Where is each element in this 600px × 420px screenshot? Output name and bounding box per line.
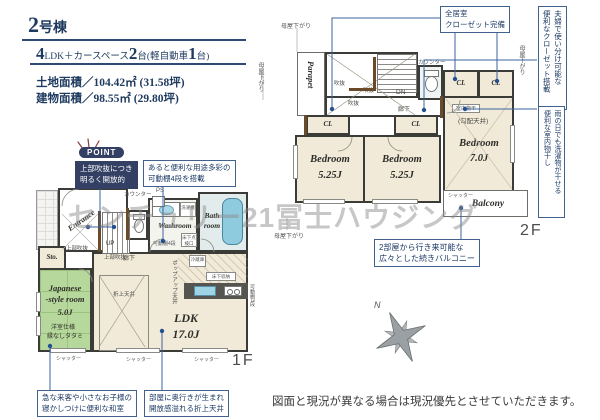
floor2-label: 2F [520,222,543,240]
ldk-window-1 [116,348,160,353]
spec-kei-text: 台) [197,52,210,62]
upper-void-label-1: 上部吹抜 [66,244,88,252]
bedroom3-ceiling-note: (勾配天井) [458,115,488,125]
closet-2f-a: CL [443,70,479,98]
closet-2f-a-label: CL [445,79,477,87]
closet-2f-b: CL [478,70,514,98]
bedroom2: Bedroom 5.25J [363,135,441,203]
closet-2f-b-label: CL [480,79,512,87]
flyer-canvas: 2号棟 4LDK＋カースペース2台(軽自動車1台) 土地面積／104.42㎡ (… [0,0,600,420]
closet-all-line-1: 全居室 [445,9,505,20]
moyasagari-right-label: 母屋下がり [517,45,526,75]
dn-label: DN [396,89,405,96]
fridge-box: 冷蔵庫 [189,255,206,267]
header-rule-top [22,39,246,41]
kitchen-counter [184,283,248,299]
closet-all-callout: 全居室 クローゼット完備 [440,6,510,33]
moyasagari-left-label: 母屋下がり [256,62,265,92]
japanese-room-name-1: Japanese [40,284,90,294]
hallway-1f-label: 廊下 [123,253,135,262]
japanese-room: Japanese -style room 5.0J 洋室仕様 縁なしタタミ [38,268,92,352]
japanese-room-size: 5.0J [40,308,90,318]
balcony-callout-line-1: 2部屋から行き来可能な [379,242,475,253]
storage-label: Sto. [40,253,64,261]
closet-2f-d: CL [394,115,438,135]
land-area: 土地面積／104.42㎡ (31.58坪) [36,74,185,90]
washitsu-callout-line-2: 寝かしつけに便利な和室 [42,404,132,415]
ceiling-callout-line-2: 開放感溢れる折上天井 [149,404,224,415]
floor-storage-box: 床下収納 [206,272,236,281]
entrance-porch [36,190,58,250]
bedroom1: Bedroom 5.25J [295,135,365,203]
stove [224,286,242,296]
spec-ldk-count: 4 [36,44,45,63]
parapet-area: Parapet [297,52,325,116]
closet-2f-d-label: CL [396,120,436,128]
up-label: UP [106,241,114,247]
balcony-callout: 2部屋から行き来可能な 広々とした続きバルコニー [374,239,480,267]
japanese-room-note-2: 縁なしタタミ [47,331,83,340]
building-title: 2号棟 [28,12,67,38]
point-callout-line-1: 上部吹抜につき [80,164,133,175]
void-label-1: 吹抜 [334,79,345,87]
point-callout: 上部吹抜につき 明るく開放的 [75,161,138,189]
popup-ceiling-label: ポップアップ天井 [170,260,178,304]
bedroom2-size: 5.25J [372,170,432,182]
parapet-label: Parapet [305,61,315,88]
bedroom3-name: Bedroom [450,138,508,150]
closet-use-col-2: 便利なクローゼット搭載 [541,10,552,106]
void-label-3: 吹抜 [348,99,359,107]
closet-use-col-1: 夫婦で使い分け可能な [552,10,563,106]
shutter-1f-label-2: シャッター [126,356,151,363]
point-callout-line-2: 明るく開放的 [80,175,133,186]
ldk: 冷蔵庫 床下収納 ポップアップ天井 折上天井 LDK 17.0J [92,252,248,352]
washitsu-callout: 急な来客や小さなお子様の 寝かしつけに便利な和室 [37,390,137,417]
ldk-name: LDK [156,312,216,326]
spec-car-text: 台(軽自動車 [137,52,188,62]
counter-2f-label: カウンター [418,58,446,66]
coffered-ceiling-label: 折上天井 [113,290,135,298]
compass-icon [365,301,437,373]
bedroom3: 室内物干 (勾配天井) Bedroom 7.0J [443,96,514,192]
building-suffix: 号棟 [39,21,67,36]
ps-label: PS [156,188,164,194]
washitsu-callout-line-1: 急な来客や小さなお子様の [42,393,132,404]
ceiling-callout-line-1: 部屋に奥行きが生まれ [149,393,224,404]
ldk-window-2 [182,348,228,353]
disclaimer: 図面と現況が異なる場合は現況優先とさせていただきます。 [272,393,581,409]
indoor-dry-label: 室内物干 [452,104,480,113]
toilet-2f-bowl [425,76,438,92]
shelf4-label: 可動棚4段 [153,240,176,247]
bedroom3-size: 7.0J [450,153,508,165]
storage-room: Sto. [38,246,66,270]
japanese-room-name-2: -style room [40,295,90,305]
building-area: 建物面積／98.55㎡ (29.80坪) [36,90,179,106]
ceiling-callout: 部屋に奥行きが生まれ 開放感溢れる折上天井 [144,390,229,417]
japanese-room-window [50,348,86,353]
indoor-dry-callout: 雨の日でも洗濯物が干せる 便利な室内物干し [538,106,565,218]
japanese-room-side-window-1 [36,292,41,312]
shutter-1f-label-3: シャッター [194,356,219,363]
header-rule-bottom [30,63,246,65]
stove-burner-2 [234,289,240,295]
closet-use-callout: 夫婦で使い分け可能な 便利なクローゼット搭載 [538,6,567,110]
hallway-2f-label: 廊下 [398,104,410,113]
layout-spec: 4LDK＋カースペース2台(軽自動車1台) [36,44,209,64]
closet-2f-c-label: CL [308,120,348,128]
shelf-callout-line-1: あると便利な用途多彩の [148,163,231,174]
spec-ldk-text: LDK＋カースペース [45,52,129,62]
toilet-2f [418,65,443,100]
bedroom3-window [510,125,515,163]
bedroom1-name: Bedroom [300,154,360,166]
balcony-callout-line-2: 広々とした続きバルコニー [379,253,475,264]
closet-2f-c: CL [306,115,350,135]
shelf-callout: あると便利な用途多彩の 可動棚4段を搭載 [143,160,236,187]
indoor-dry-col-1: 雨の日でも洗濯物が干せる [552,110,563,214]
shelf3-label: 可動棚3段 [249,284,256,307]
indoor-dry-col-2: 便利な室内物干し [541,110,552,214]
ldk-size: 17.0J [156,328,216,342]
japanese-room-note-1: 洋室仕様 [51,322,75,331]
watermark: センチュリー21冨士ハウジング [68,196,478,236]
point-badge: POINT [79,147,124,158]
shelf-callout-line-2: 可動棚4段を搭載 [148,174,231,185]
coffered-ceiling-area: 折上天井 [99,275,149,351]
stairs-2f [377,54,417,93]
spec-kei-count: 1 [188,44,197,63]
bedroom1-side-window [293,145,298,179]
japanese-room-side-window-2 [36,316,41,336]
stove-burner-1 [227,289,233,295]
bedroom2-name: Bedroom [372,154,432,166]
bedroom1-size: 5.25J [300,170,360,182]
shutter-1f-label-1: シャッター [56,355,81,362]
compass-north-label: N [374,300,381,310]
kitchen-sink [194,286,216,296]
building-number: 2 [28,12,39,37]
void-label-2: 吹抜 [363,86,374,94]
moyasagari-top-label: 母屋下がり [281,21,311,30]
closet-all-line-2: クローゼット完備 [445,20,505,31]
floor1-label: 1F [232,352,255,370]
